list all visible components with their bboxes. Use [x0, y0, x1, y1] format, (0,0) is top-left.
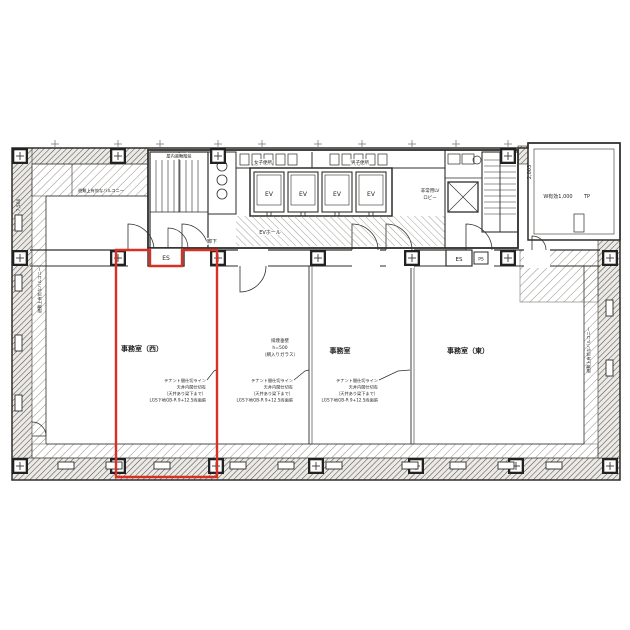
svg-text:LGS下地GB-R 9+12.5両面張: LGS下地GB-R 9+12.5両面張: [321, 397, 378, 404]
column: [13, 149, 27, 163]
es-west-label: ES: [162, 255, 170, 262]
emergency-elevator: [448, 182, 478, 212]
svg-text:（網入りガラス）: （網入りガラス）: [262, 351, 298, 358]
terrace-depth-dim: 2,003: [527, 165, 533, 179]
office-boundaries: [46, 164, 584, 444]
svg-text:LGS下地GB-R 9+12.5両面張: LGS下地GB-R 9+12.5両面張: [149, 397, 206, 404]
svg-text:LGS下地GB-R 9+12.5両面張: LGS下地GB-R 9+12.5両面張: [236, 397, 293, 404]
ev-hall-label: EVホール: [259, 230, 281, 236]
svg-text:（天井あり梁下まで）: （天井あり梁下まで）: [251, 390, 293, 397]
svg-text:テナント間仕切ライン: テナント間仕切ライン: [164, 377, 206, 384]
balcony-note-left: 避難上有効なバルコニー: [36, 267, 43, 313]
grid-ticks: [51, 140, 512, 148]
column: [311, 251, 325, 265]
svg-text:排煙垂壁: 排煙垂壁: [271, 337, 289, 344]
column: [13, 459, 27, 473]
es-east-label: ES: [456, 257, 463, 263]
terrace-width-label: W有効1,000: [543, 193, 572, 200]
floor-plan-page: 事務室（西） 事務室 事務室（東） テナント間仕切ライン 天井内間仕切有 （天井…: [0, 0, 630, 630]
floor-plan-canvas: 事務室（西） 事務室 事務室（東） テナント間仕切ライン 天井内間仕切有 （天井…: [0, 0, 630, 630]
column: [603, 251, 617, 265]
balcony-note-top: 避難上有効なバルコニー: [78, 187, 124, 194]
tenant-note-center: テナント間仕切ライン 天井内間仕切有 （天井あり梁下まで） LGS下地GB-R …: [236, 377, 293, 404]
column: [603, 459, 617, 473]
emergency-lobby-label: ロビー: [423, 194, 437, 201]
column: [111, 251, 125, 265]
stair-west: [150, 152, 208, 248]
column: [111, 149, 125, 163]
svg-text:天井内間仕切有: 天井内間仕切有: [349, 384, 378, 391]
ev-label: EV: [265, 191, 274, 198]
room-label-center: 事務室: [330, 346, 351, 355]
svg-text:天井内間仕切有: 天井内間仕切有: [177, 384, 206, 391]
svg-text:（天井あり梁下まで）: （天井あり梁下まで）: [164, 390, 206, 397]
left-dim-label: 7,500: [16, 198, 22, 211]
core-east-section: [445, 150, 518, 248]
svg-text:天井内間仕切有: 天井内間仕切有: [264, 384, 293, 391]
ev-label: EV: [333, 191, 342, 198]
stair-west-label: 屋内避難階段: [166, 153, 192, 160]
tenant-note-west: テナント間仕切ライン 天井内間仕切有 （天井あり梁下まで） LGS下地GB-R …: [149, 377, 206, 404]
terrace-tp-label: TP: [583, 194, 590, 200]
balcony-note-right: 避難上有効なバルコニー: [585, 327, 592, 373]
smoke-barrier-note: 排煙垂壁 h=500 （網入りガラス）: [262, 337, 298, 358]
service-core: [148, 150, 518, 248]
ev-label: EV: [299, 191, 308, 198]
svg-text:（天井あり梁下まで）: （天井あり梁下まで）: [336, 390, 378, 397]
wc-men-label: 男子便所: [351, 159, 369, 166]
column: [405, 251, 419, 265]
column: [501, 149, 515, 163]
corridor-label: 廊下: [207, 238, 217, 245]
ev-label: EV: [367, 191, 376, 198]
svg-text:テナント間仕切ライン: テナント間仕切ライン: [336, 377, 378, 384]
wc-women-label: 女子便所: [254, 159, 272, 166]
room-label-east: 事務室（東）: [447, 346, 489, 355]
svg-text:h=500: h=500: [272, 345, 287, 351]
ps-label: PS: [478, 257, 484, 263]
emergency-lv-label: 非常用LV: [421, 187, 441, 194]
svg-text:テナント間仕切ライン: テナント間仕切ライン: [251, 377, 293, 384]
column: [13, 251, 27, 265]
tenant-note-east: テナント間仕切ライン 天井内間仕切有 （天井あり梁下まで） LGS下地GB-R …: [321, 377, 378, 404]
tenant-boundary-red: [116, 250, 217, 477]
annotation-leaders: [207, 370, 410, 380]
terrace: [528, 143, 620, 240]
column: [211, 149, 225, 163]
column: [309, 459, 323, 473]
column: [501, 251, 515, 265]
room-label-west: 事務室（西）: [121, 344, 163, 353]
